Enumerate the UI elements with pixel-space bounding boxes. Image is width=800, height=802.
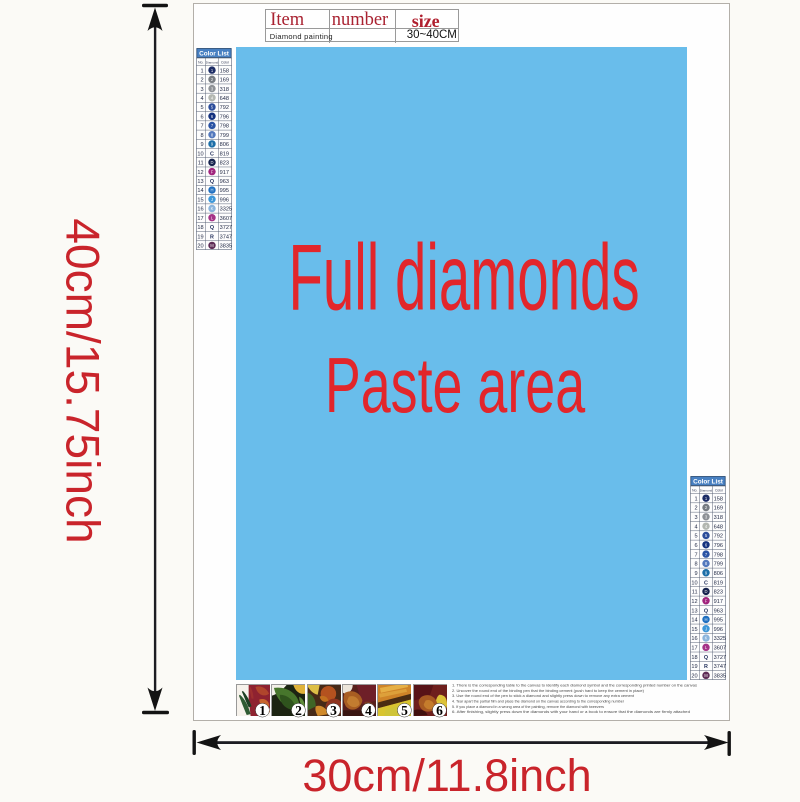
svg-text:18: 18: [691, 655, 697, 661]
svg-text:4. Tear apart the partial: 4. Tear apart the partial film and place…: [452, 699, 625, 703]
svg-text:7: 7: [200, 124, 203, 130]
svg-text:996: 996: [713, 627, 722, 633]
svg-text:819: 819: [219, 151, 228, 157]
svg-text:1. There is the correspond: 1. There is the corresponding table to t…: [452, 683, 697, 687]
svg-text:6. After finishing, slightl: 6. After finishing, slightly press down …: [452, 710, 690, 714]
svg-text:3: 3: [330, 703, 337, 718]
svg-text:No.: No.: [692, 488, 697, 492]
svg-text:D: D: [210, 160, 213, 165]
svg-text:13: 13: [691, 608, 697, 614]
svg-text:R: R: [704, 664, 708, 670]
svg-text:15: 15: [691, 627, 697, 633]
svg-text:J: J: [210, 197, 212, 202]
svg-text:318: 318: [713, 515, 722, 521]
svg-text:792: 792: [219, 105, 228, 111]
svg-text:15: 15: [197, 197, 203, 203]
svg-text:1: 1: [200, 68, 203, 74]
svg-text:No.: No.: [198, 60, 203, 64]
svg-text:158: 158: [219, 68, 228, 74]
svg-text:2. Uncover the round end: 2. Uncover the round end of the binding …: [452, 688, 644, 692]
svg-text:917: 917: [713, 599, 722, 605]
svg-text:5: 5: [694, 533, 697, 539]
svg-text:C: C: [704, 580, 708, 586]
svg-text:3. Use the round end of: 3. Use the round end of the pen to stick…: [452, 694, 634, 698]
svg-text:9: 9: [694, 571, 697, 577]
svg-text:F: F: [704, 598, 707, 603]
svg-text:806: 806: [219, 142, 228, 148]
svg-text:R: R: [210, 234, 214, 240]
svg-text:18: 18: [197, 225, 203, 231]
svg-text:169: 169: [219, 78, 228, 84]
svg-text:3747: 3747: [713, 664, 725, 670]
svg-text:Q: Q: [209, 179, 213, 185]
svg-text:17: 17: [691, 645, 697, 651]
svg-text:K: K: [210, 206, 213, 211]
svg-text:Color List: Color List: [199, 51, 230, 58]
svg-text:H: H: [210, 188, 213, 193]
svg-text:2: 2: [295, 703, 302, 718]
svg-text:Color: Color: [714, 488, 723, 492]
svg-text:19: 19: [197, 234, 203, 240]
svg-text:823: 823: [219, 161, 228, 167]
svg-text:Q: Q: [703, 655, 707, 661]
svg-text:806: 806: [713, 571, 722, 577]
svg-text:3: 3: [694, 515, 697, 521]
svg-text:20: 20: [691, 673, 697, 679]
svg-text:5. If you place a diamond: 5. If you place a diamond in a wrong are…: [452, 704, 604, 708]
svg-text:796: 796: [219, 114, 228, 120]
svg-text:16: 16: [691, 636, 697, 642]
svg-text:648: 648: [219, 96, 228, 102]
svg-text:3325: 3325: [219, 207, 231, 213]
svg-text:D: D: [704, 589, 707, 594]
svg-text:12: 12: [197, 170, 203, 176]
svg-text:917: 917: [219, 170, 228, 176]
svg-text:4: 4: [200, 96, 203, 102]
svg-text:169: 169: [713, 505, 722, 511]
svg-text:6: 6: [200, 114, 203, 120]
svg-text:H: H: [704, 617, 707, 622]
svg-text:2: 2: [200, 78, 203, 84]
svg-text:9: 9: [200, 142, 203, 148]
svg-text:1: 1: [694, 496, 697, 502]
svg-text:3835: 3835: [219, 244, 231, 250]
svg-text:14: 14: [691, 617, 697, 623]
svg-text:6: 6: [436, 703, 443, 718]
svg-text:16: 16: [197, 207, 203, 213]
svg-text:792: 792: [713, 533, 722, 539]
svg-text:3727: 3727: [713, 655, 725, 661]
svg-text:963: 963: [219, 179, 228, 185]
svg-text:995: 995: [713, 617, 722, 623]
svg-text:4: 4: [366, 703, 373, 718]
svg-text:Diamond: Diamond: [699, 488, 712, 492]
svg-text:11: 11: [197, 161, 203, 167]
svg-text:3325: 3325: [713, 636, 725, 642]
svg-text:996: 996: [219, 197, 228, 203]
svg-text:19: 19: [691, 664, 697, 670]
svg-text:648: 648: [713, 524, 722, 530]
svg-text:17: 17: [197, 216, 203, 222]
svg-text:798: 798: [713, 552, 722, 558]
svg-text:3835: 3835: [713, 673, 725, 679]
svg-text:2: 2: [694, 505, 697, 511]
svg-text:3607: 3607: [219, 216, 231, 222]
svg-text:12: 12: [691, 599, 697, 605]
svg-text:10: 10: [691, 580, 697, 586]
svg-text:Q: Q: [209, 225, 213, 231]
svg-text:796: 796: [713, 543, 722, 549]
svg-text:799: 799: [713, 561, 722, 567]
svg-text:M: M: [210, 243, 214, 248]
svg-text:963: 963: [713, 608, 722, 614]
svg-text:8: 8: [200, 133, 203, 139]
svg-text:158: 158: [713, 496, 722, 502]
svg-text:20: 20: [197, 244, 203, 250]
svg-text:3727: 3727: [219, 225, 231, 231]
svg-text:995: 995: [219, 188, 228, 194]
svg-text:13: 13: [197, 179, 203, 185]
svg-text:14: 14: [197, 188, 203, 194]
svg-text:819: 819: [713, 580, 722, 586]
svg-text:799: 799: [219, 133, 228, 139]
svg-text:Color List: Color List: [693, 478, 724, 485]
svg-text:F: F: [210, 169, 213, 174]
svg-text:3: 3: [200, 87, 203, 93]
svg-text:8: 8: [694, 561, 697, 567]
svg-text:Color: Color: [220, 60, 229, 64]
svg-text:K: K: [704, 636, 707, 641]
svg-text:10: 10: [197, 151, 203, 157]
svg-text:1: 1: [259, 703, 266, 718]
svg-text:7: 7: [694, 552, 697, 558]
svg-text:798: 798: [219, 124, 228, 130]
svg-text:4: 4: [694, 524, 697, 530]
svg-text:3747: 3747: [219, 234, 231, 240]
svg-text:5: 5: [401, 703, 408, 718]
svg-text:6: 6: [694, 543, 697, 549]
svg-text:M: M: [704, 673, 708, 678]
svg-text:11: 11: [691, 589, 697, 595]
svg-text:C: C: [210, 151, 214, 157]
svg-text:823: 823: [713, 589, 722, 595]
svg-text:J: J: [704, 626, 706, 631]
svg-text:5: 5: [200, 105, 203, 111]
svg-text:318: 318: [219, 87, 228, 93]
svg-text:Q: Q: [703, 608, 707, 614]
svg-text:3607: 3607: [713, 645, 725, 651]
svg-text:Diamond: Diamond: [205, 60, 218, 64]
